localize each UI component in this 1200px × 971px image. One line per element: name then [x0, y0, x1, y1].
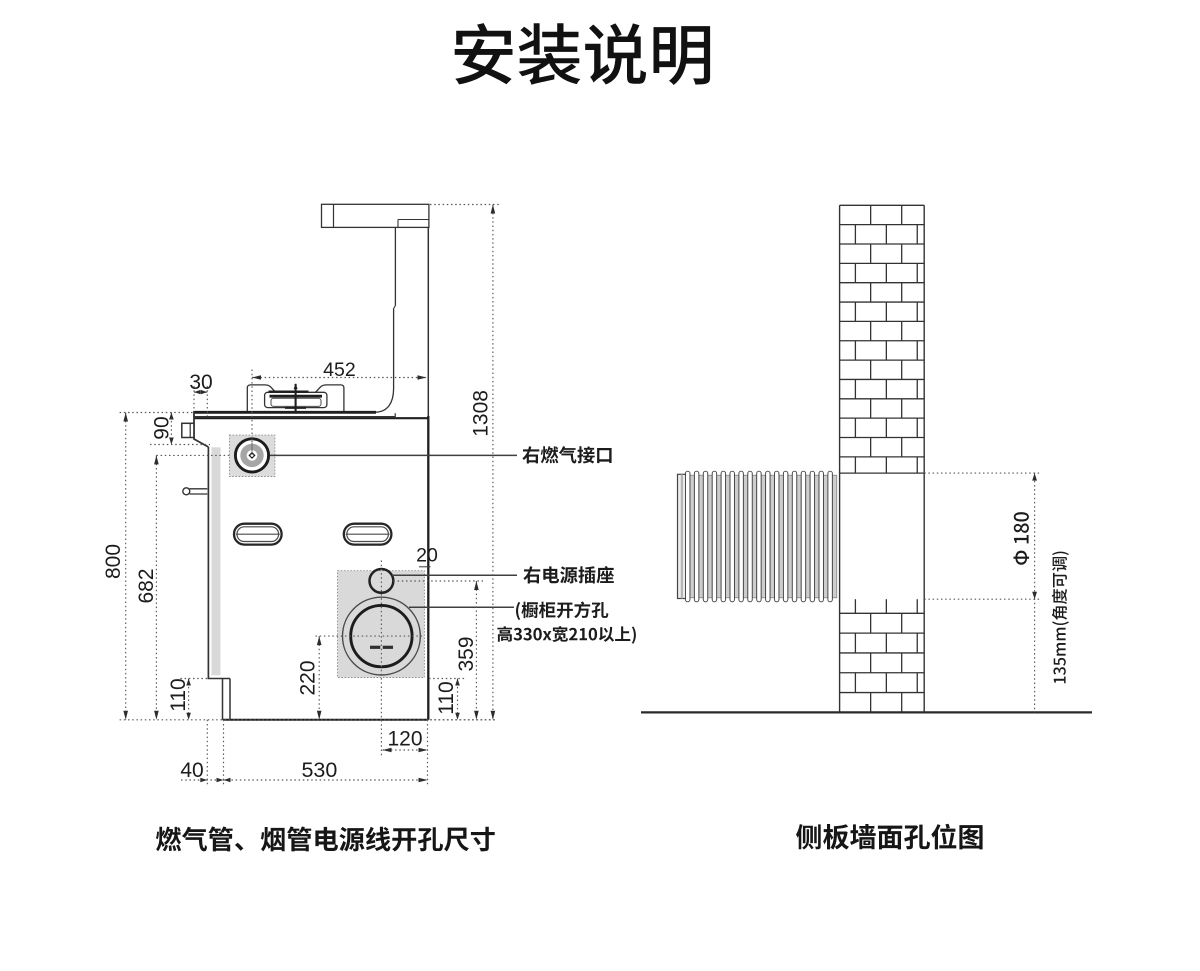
svg-text:1308: 1308 [470, 390, 493, 437]
svg-text:359: 359 [455, 636, 478, 671]
svg-text:530: 530 [301, 758, 337, 782]
svg-text:220: 220 [296, 660, 319, 695]
svg-text:40: 40 [180, 759, 203, 782]
svg-text:120: 120 [387, 728, 422, 751]
svg-text:110: 110 [435, 681, 458, 714]
svg-text:20: 20 [416, 545, 438, 567]
svg-text:452: 452 [323, 359, 356, 381]
svg-text:110: 110 [167, 678, 190, 711]
svg-text:682: 682 [135, 568, 158, 603]
svg-text:800: 800 [102, 544, 125, 579]
svg-text:30: 30 [189, 371, 212, 394]
svg-text:90: 90 [150, 416, 173, 439]
